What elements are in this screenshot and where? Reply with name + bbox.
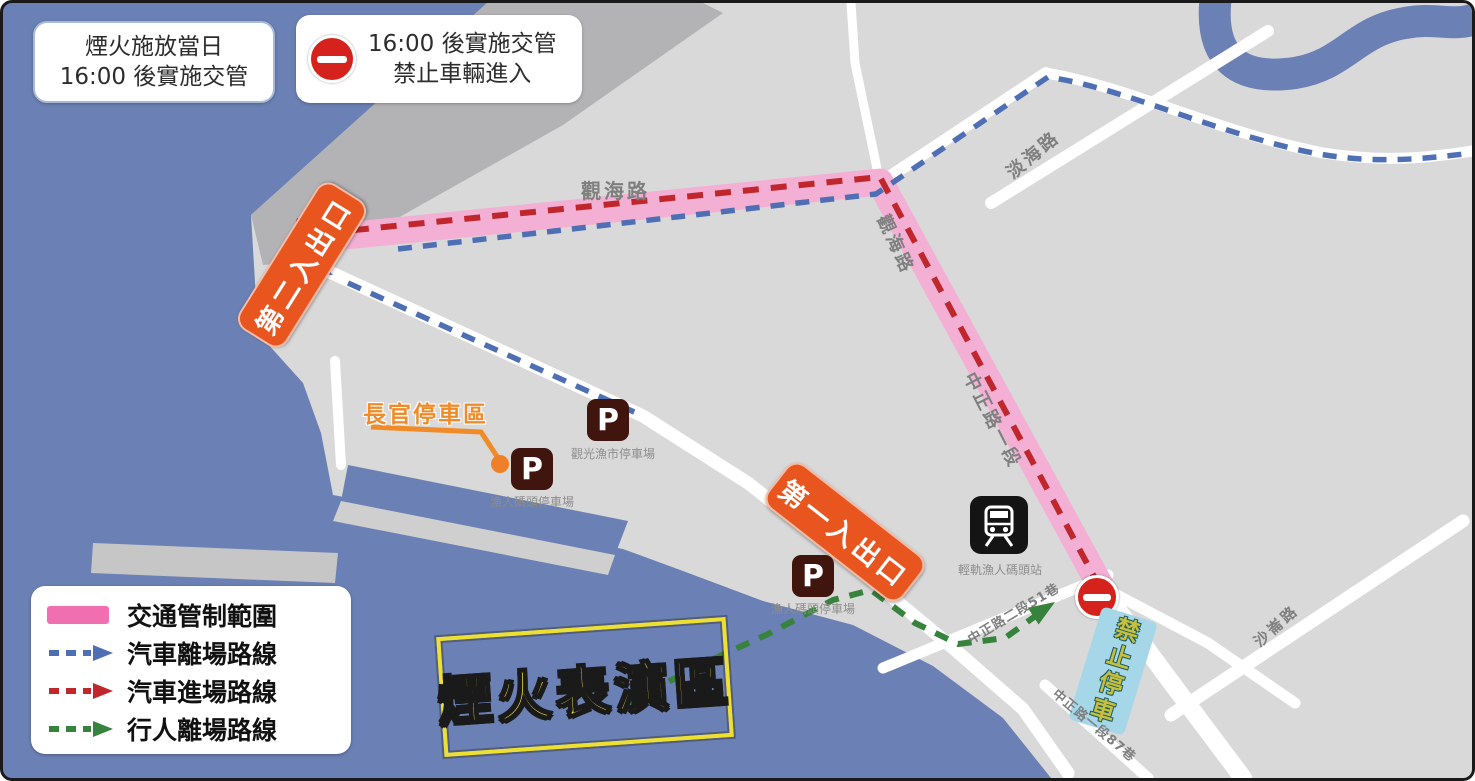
parking-label-wharf-2: 漁人碼頭停車場 — [758, 600, 868, 617]
callout-fireworks-day: 煙火施放當日 16:00 後實施交管 — [33, 21, 275, 103]
station-label: 輕軌漁人碼頭站 — [944, 561, 1056, 578]
traffic-map: 煙火施放當日 16:00 後實施交管 16:00 後實施交管 禁止車輛進入 交通… — [0, 0, 1475, 781]
parking-icon-wharf-1: P — [511, 448, 553, 490]
car-entry-arrow-icon — [47, 681, 115, 701]
road-label-guanhai-1: 觀海路 — [581, 175, 650, 204]
train-icon — [972, 498, 1026, 552]
vip-parking-dot — [491, 455, 509, 473]
callout-no-entry: 16:00 後實施交管 禁止車輛進入 — [296, 15, 582, 103]
pedestrian-exit-arrow-icon — [47, 719, 115, 739]
parking-label-tourist-market: 觀光漁市停車場 — [558, 445, 668, 462]
pier — [91, 543, 338, 583]
parking-label-wharf-1: 漁人碼頭停車場 — [477, 493, 587, 510]
callout-no-entry-line1: 16:00 後實施交管 — [368, 29, 557, 59]
fireworks-area-box: 煙火表演區 — [436, 617, 734, 757]
car-exit-arrow-icon — [47, 643, 115, 663]
fireworks-area-label: 煙火表演區 — [435, 637, 735, 736]
callout-fireworks-day-line1: 煙火施放當日 — [85, 32, 223, 62]
legend-label-car-entry: 汽車進場路線 — [127, 673, 277, 709]
control-zone-swatch — [47, 606, 109, 624]
legend-item-car-exit: 汽車離場路線 — [47, 634, 351, 672]
legend-label-pedestrian-exit: 行人離場路線 — [127, 711, 277, 747]
parking-icon-wharf-2: P — [792, 555, 834, 597]
legend-item-control-zone: 交通管制範圍 — [47, 596, 351, 634]
vip-parking-label: 長官停車區 — [363, 395, 488, 429]
no-entry-icon — [308, 35, 356, 83]
callout-no-entry-line2: 禁止車輛進入 — [368, 59, 557, 89]
parking-icon-tourist-market: P — [587, 399, 629, 441]
legend-label-car-exit: 汽車離場路線 — [127, 635, 277, 671]
legend: 交通管制範圍 汽車離場路線 汽車進場路線 — [31, 586, 351, 754]
legend-label-control-zone: 交通管制範圍 — [127, 597, 277, 633]
legend-item-car-entry: 汽車進場路線 — [47, 672, 351, 710]
train-station-icon — [970, 496, 1028, 554]
callout-fireworks-day-line2: 16:00 後實施交管 — [60, 62, 249, 92]
legend-item-pedestrian-exit: 行人離場路線 — [47, 710, 351, 748]
